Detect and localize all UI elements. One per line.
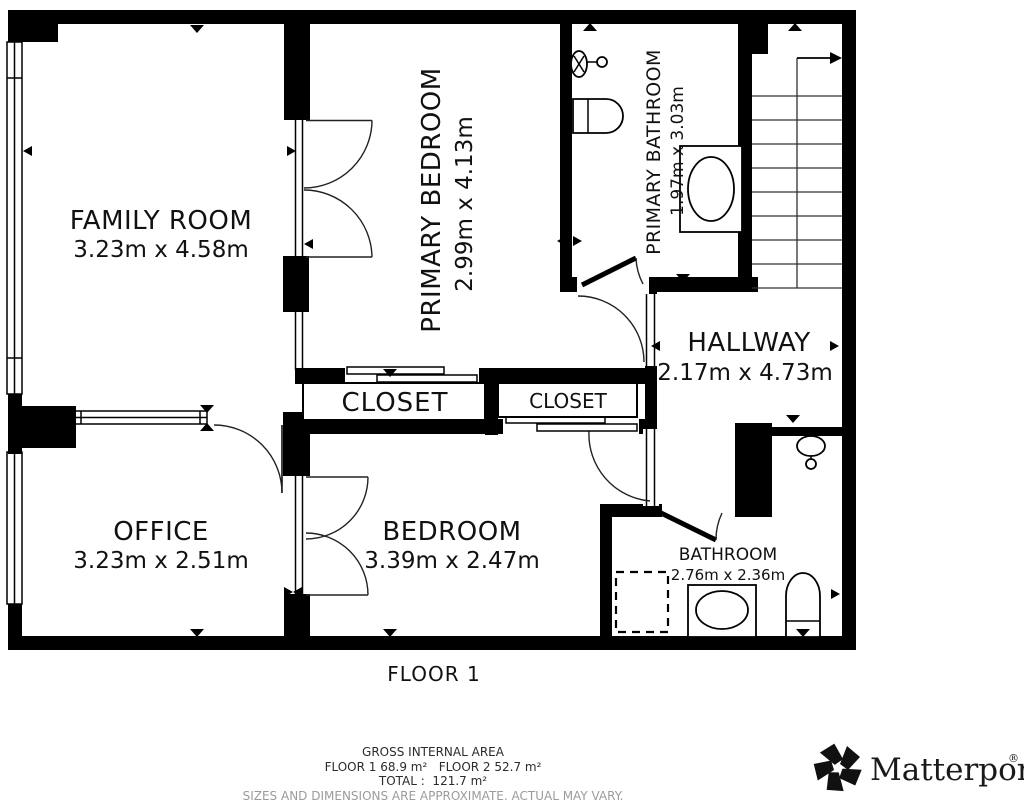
wall-primarybed-primarybath bbox=[560, 10, 572, 290]
bathroom-sink bbox=[797, 436, 825, 469]
primary-bathroom-tub bbox=[680, 146, 742, 232]
tick bbox=[383, 629, 397, 637]
wall-left-top-corner bbox=[8, 10, 58, 42]
registered-trademark: ® bbox=[1008, 752, 1019, 765]
stairs-direction-arrow bbox=[797, 52, 842, 64]
primary-bathroom-faucet bbox=[571, 51, 607, 77]
label-hallway: HALLWAY bbox=[687, 328, 810, 358]
label-bedroom-dims: 3.39m x 2.47m bbox=[364, 548, 539, 574]
tick bbox=[788, 23, 802, 31]
tick bbox=[831, 589, 840, 599]
door-bathroom bbox=[661, 513, 722, 540]
wall-stub-primary-bedroom bbox=[296, 312, 303, 370]
label-family-room: FAMILY ROOM bbox=[70, 206, 253, 236]
double-door-primary-bedroom bbox=[296, 120, 373, 258]
gap-closet-bottom-sliding bbox=[503, 417, 639, 436]
stairs bbox=[752, 52, 842, 288]
wall-office-bedroom-bottom bbox=[284, 594, 310, 638]
wall-bathroom-top bbox=[772, 427, 843, 436]
wall-closet-divider bbox=[485, 383, 498, 435]
wall-stairs-landing-block bbox=[738, 10, 768, 54]
floor-label: FLOOR 1 bbox=[387, 662, 480, 686]
tick bbox=[190, 25, 204, 33]
wall-bedroom-bathroom bbox=[600, 504, 612, 637]
summary-title: GROSS INTERNAL AREA bbox=[362, 745, 505, 759]
label-primary-bathroom-dims: 1.97m x 3.03m bbox=[668, 86, 688, 216]
summary-total: TOTAL : 121.7 m² bbox=[378, 774, 487, 788]
wall-bottom bbox=[8, 636, 856, 650]
wall-right bbox=[842, 10, 856, 650]
window-familyroom-left bbox=[7, 42, 22, 394]
tick bbox=[200, 405, 214, 413]
window-office-left bbox=[7, 452, 22, 604]
tick bbox=[786, 415, 800, 423]
primary-bathroom-toilet bbox=[573, 99, 623, 133]
double-door-bedroom bbox=[296, 476, 369, 595]
matterport-wordmark: Matterport bbox=[870, 752, 1024, 788]
tick bbox=[583, 23, 597, 31]
floor-plan-canvas: FAMILY ROOM 3.23m x 4.58m PRIMARY BEDROO… bbox=[0, 0, 1024, 800]
label-hallway-dims: 2.17m x 4.73m bbox=[657, 360, 832, 386]
tick bbox=[190, 629, 204, 637]
wall-hallway-bathroom-block bbox=[735, 423, 772, 517]
gap-bathroom-door bbox=[662, 504, 735, 517]
bathroom-shower bbox=[616, 572, 668, 632]
label-office: OFFICE bbox=[113, 517, 209, 547]
tick bbox=[573, 236, 582, 246]
wall-familyroom-bedroom-upper bbox=[284, 24, 310, 120]
label-primary-bathroom: PRIMARY BATHROOM bbox=[643, 49, 665, 255]
bathroom-vanity bbox=[688, 585, 756, 637]
floor-plan-page: FAMILY ROOM 3.23m x 4.58m PRIMARY BEDROO… bbox=[0, 0, 1024, 800]
wall-top bbox=[8, 10, 856, 24]
label-closet-right: CLOSET bbox=[529, 389, 607, 413]
label-bathroom-dims: 2.76m x 2.36m bbox=[671, 566, 785, 584]
tick bbox=[287, 146, 296, 156]
label-office-dims: 3.23m x 2.51m bbox=[73, 548, 248, 574]
label-primary-bedroom-dims: 2.99m x 4.13m bbox=[452, 116, 478, 291]
matterport-pinwheel-icon bbox=[807, 740, 865, 798]
wall-left-bottom bbox=[8, 604, 22, 650]
label-bedroom: BEDROOM bbox=[382, 517, 521, 547]
window-familyroom-office bbox=[75, 411, 207, 424]
label-closet-left: CLOSET bbox=[342, 388, 449, 418]
area-summary: GROSS INTERNAL AREA FLOOR 1 68.9 m² FLOO… bbox=[243, 745, 624, 800]
wall-familyroom-bedroom-lower bbox=[283, 256, 309, 312]
matterport-logo: Matterport ® bbox=[807, 740, 1024, 798]
room-labels: FAMILY ROOM 3.23m x 4.58m PRIMARY BEDROO… bbox=[70, 49, 833, 584]
summary-disclaimer: SIZES AND DIMENSIONS ARE APPROXIMATE, AC… bbox=[243, 789, 624, 800]
tick bbox=[830, 341, 839, 351]
tick bbox=[304, 239, 313, 249]
door-office bbox=[214, 425, 282, 493]
tick bbox=[23, 146, 32, 156]
gap-corridor-door bbox=[643, 294, 659, 366]
gap-nook-door bbox=[643, 429, 659, 506]
wall-left-mid-b bbox=[8, 406, 76, 448]
label-primary-bedroom: PRIMARY BEDROOM bbox=[417, 67, 447, 332]
summary-areas: FLOOR 1 68.9 m² FLOOR 2 52.7 m² bbox=[325, 760, 542, 774]
stair-treads bbox=[752, 58, 842, 288]
label-bathroom: BATHROOM bbox=[679, 545, 777, 565]
bathroom-toilet bbox=[786, 573, 820, 637]
label-family-room-dims: 3.23m x 4.58m bbox=[73, 237, 248, 263]
